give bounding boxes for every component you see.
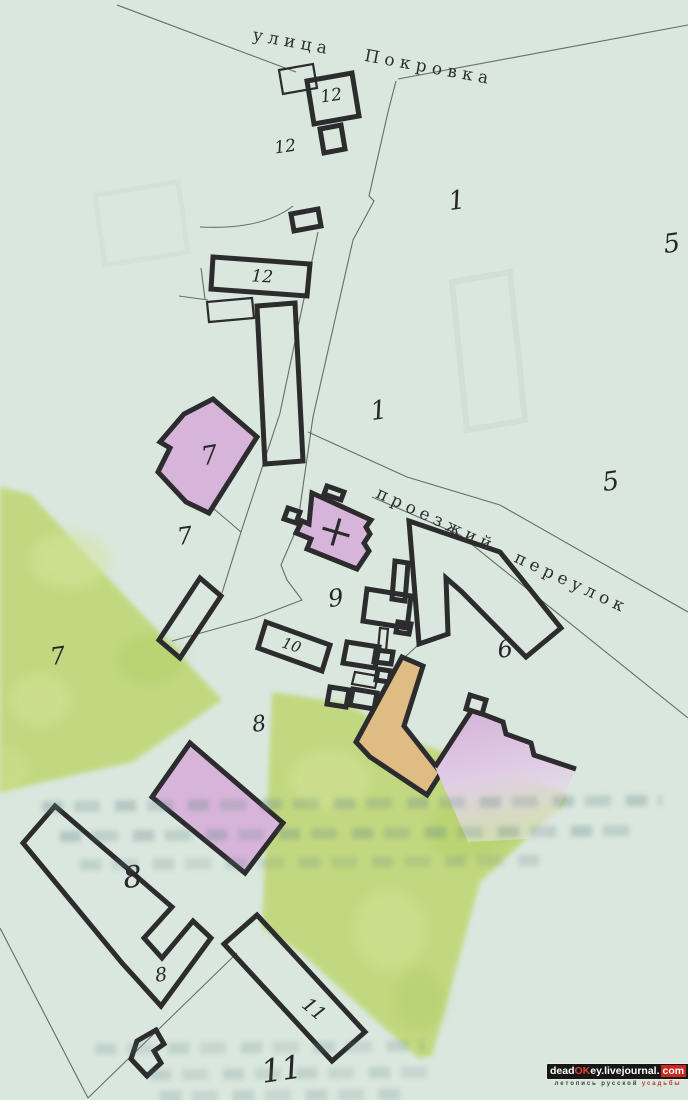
building-at-drive xyxy=(291,209,321,231)
plot-label-6: 6 xyxy=(496,634,514,663)
plot-label-8-top: 8 xyxy=(250,711,267,738)
street-name-pokrovka: улица Покровка xyxy=(251,25,495,89)
plot-label-9: 9 xyxy=(326,583,345,613)
plot-label-8-small: 8 xyxy=(154,963,169,986)
watermark-subtitle: летопись русской усадьбы xyxy=(546,1081,688,1087)
building-outbuilding-west xyxy=(159,578,221,658)
plot-label-1-upper: 1 xyxy=(447,185,468,217)
watermark: deadOKey.livejournal.com летопись русско… xyxy=(546,1059,688,1087)
watermark-url: deadOKey.livejournal.com xyxy=(546,1063,688,1080)
plot-label-11-in: 11 xyxy=(298,993,331,1025)
watermark-part-ok: OK xyxy=(575,1065,591,1077)
building-tall-wing xyxy=(257,303,303,464)
yard-line-1 xyxy=(201,268,205,299)
scanned-estate-plan: улица Покровка проезжий переулок 12 12 1… xyxy=(0,0,688,1100)
watermark-part-dead: dead xyxy=(550,1065,575,1077)
ghost-rectangle-right xyxy=(452,272,525,430)
church-porch-west xyxy=(284,508,300,523)
plot-label-12-left: 12 xyxy=(273,136,297,159)
plot-label-1-lower: 1 xyxy=(369,395,390,427)
ghost-rectangle-left xyxy=(95,182,188,265)
yard-line-2 xyxy=(179,296,208,300)
plot-label-7-mid: 7 xyxy=(175,521,195,551)
watermark-subtitle-left: летопись русской xyxy=(555,1081,639,1087)
south-line-2 xyxy=(0,928,88,1098)
watermark-part-livejournal: .livejournal. xyxy=(601,1065,659,1077)
bleed-through-shapes xyxy=(95,182,525,430)
plot-label-5-upper: 5 xyxy=(662,228,683,260)
plot-label-12-mid: 12 xyxy=(251,266,274,287)
plan-drawing: улица Покровка проезжий переулок 12 12 1… xyxy=(0,0,688,1100)
curved-drive xyxy=(200,206,293,227)
plot-label-10: 10 xyxy=(280,634,304,657)
watermark-part-ey: ey xyxy=(590,1065,601,1077)
bleed-through-text-band xyxy=(160,1089,400,1100)
building-12-shed xyxy=(320,125,345,153)
plot-label-12-top: 12 xyxy=(319,85,343,108)
plot-label-5-lower: 5 xyxy=(601,466,622,498)
building-small-annex xyxy=(207,298,254,322)
building-yard-e xyxy=(327,687,349,707)
watermark-part-com: com xyxy=(661,1065,687,1077)
watermark-subtitle-right: усадьбы xyxy=(642,1081,682,1087)
building-stepped-porch xyxy=(466,695,486,714)
